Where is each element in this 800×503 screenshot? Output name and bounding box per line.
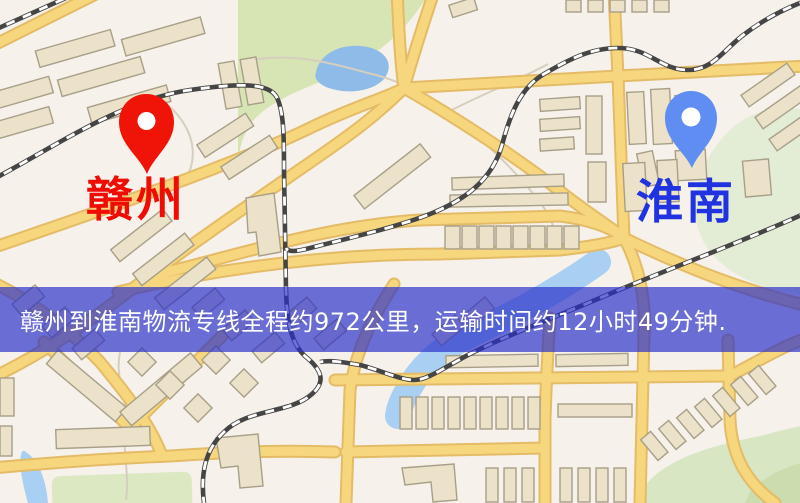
destination-label: 淮南	[636, 179, 736, 226]
route-info-banner: 赣州到淮南物流专线全程约972公里，运输时间约12小时49分钟.	[0, 287, 800, 352]
pins-layer	[0, 0, 800, 503]
destination-pin-icon	[665, 91, 717, 168]
route-info-text: 赣州到淮南物流专线全程约972公里，运输时间约12小时49分钟.	[20, 302, 727, 337]
origin-label: 赣州	[86, 177, 186, 224]
origin-pin-icon	[119, 94, 174, 174]
map-image: 赣州 淮南 赣州到淮南物流专线全程约972公里，运输时间约12小时49分钟.	[0, 0, 800, 503]
